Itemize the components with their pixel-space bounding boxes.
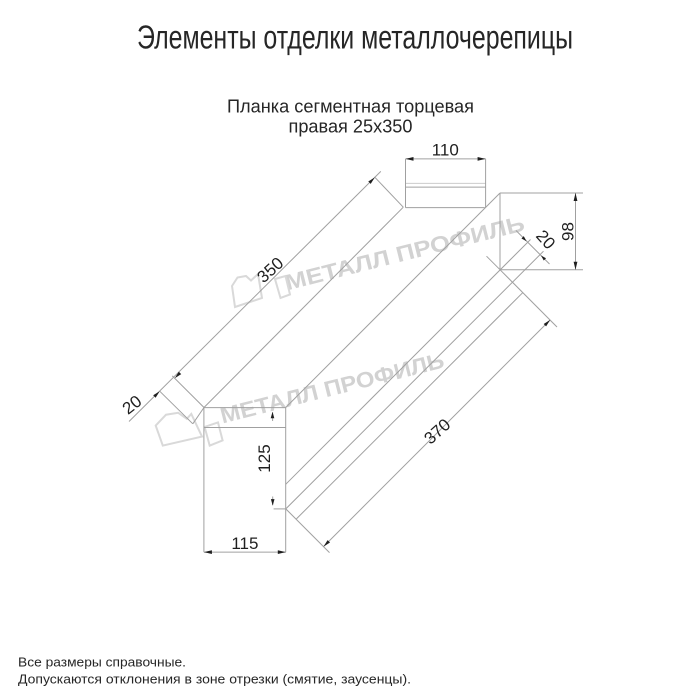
svg-text:20: 20: [119, 392, 146, 419]
svg-text:МЕТАЛЛ ПРОФИЛЬ: МЕТАЛЛ ПРОФИЛЬ: [282, 211, 527, 296]
svg-text:Планка сегментная торцевая: Планка сегментная торцевая: [227, 97, 474, 117]
svg-text:Допускаются отклонения в зоне: Допускаются отклонения в зоне отрезки (с…: [18, 672, 411, 687]
svg-text:Все размеры справочные.: Все размеры справочные.: [18, 655, 186, 670]
svg-text:20: 20: [532, 226, 559, 253]
svg-text:125: 125: [255, 444, 274, 472]
svg-text:110: 110: [432, 140, 459, 159]
svg-text:98: 98: [559, 222, 578, 241]
svg-text:115: 115: [231, 534, 258, 553]
svg-text:правая 25х350: правая 25х350: [289, 117, 413, 137]
svg-text:370: 370: [421, 415, 455, 448]
svg-text:Элементы отделки металлочерепи: Элементы отделки металлочерепицы: [137, 19, 573, 56]
